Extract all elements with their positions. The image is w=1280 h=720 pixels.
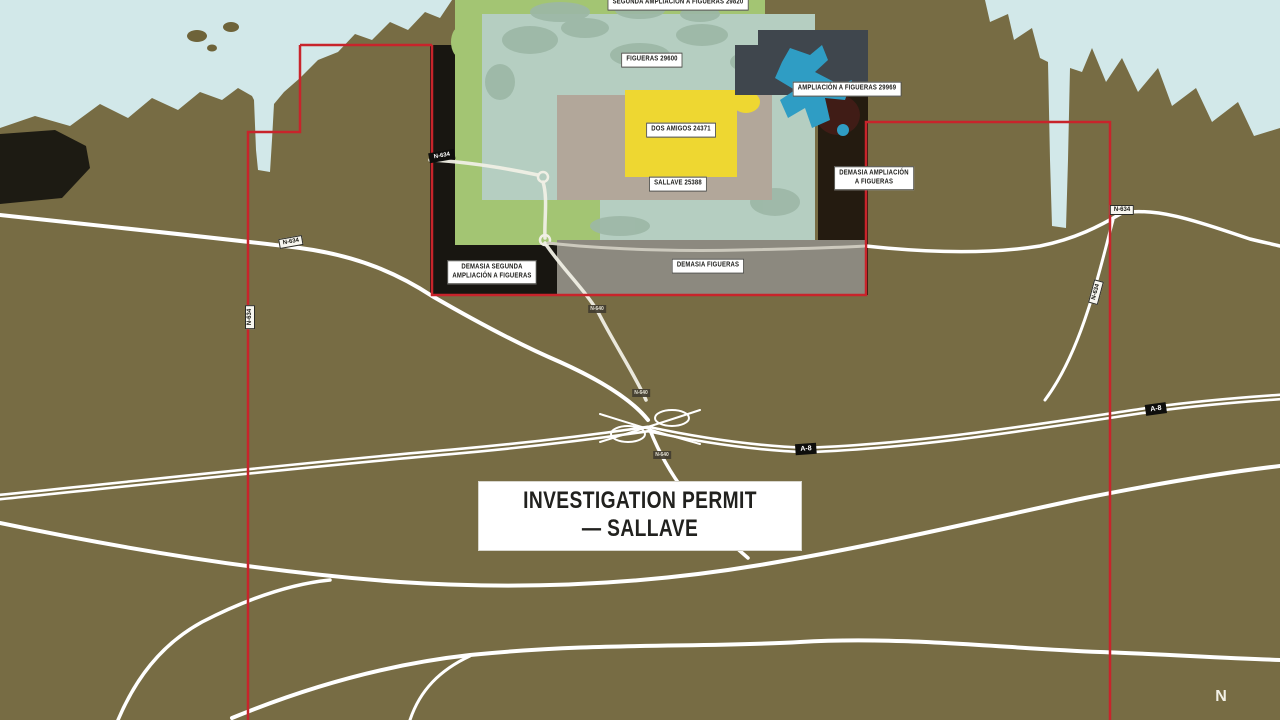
map-drawing	[0, 0, 1280, 720]
label-demasia-segunda: DEMASIA SEGUNDA AMPLIACIÓN A FIGUERAS	[447, 260, 536, 284]
label-ampliacion-figueras: AMPLIACIÓN A FIGUERAS 29969	[793, 82, 902, 97]
blue-dot	[837, 124, 849, 136]
label-line: DEMASIA AMPLIACIÓN	[839, 169, 908, 178]
label-dos-amigos: DOS AMIGOS 24371	[646, 123, 716, 138]
road-badge-n640-junction-south: N-640	[653, 451, 671, 459]
road-badge-n640-junction-north: N-640	[632, 389, 650, 397]
map-title-box: INVESTIGATION PERMIT — SALLAVE	[479, 482, 801, 550]
road-badge-a8-center: A-8	[795, 443, 817, 455]
label-line: AMPLIACIÓN A FIGUERAS	[452, 272, 531, 281]
label-figueras: FIGUERAS 29600	[621, 53, 683, 68]
label-demasia-figueras: DEMASIA FIGUERAS	[672, 259, 745, 274]
road-badge-n634-east: N-634	[1110, 205, 1134, 215]
label-demasia-ampliacion: DEMASIA AMPLIACIÓN A FIGUERAS	[834, 166, 914, 190]
label-sallave: SALLAVE 25388	[649, 177, 707, 192]
map-canvas: SEGUNDA AMPLIACIÓN A FIGUERAS 29820 FIGU…	[0, 0, 1280, 720]
label-segunda-ampliacion: SEGUNDA AMPLIACIÓN A FIGUERAS 29820	[608, 0, 749, 10]
road-badge-n634-west-lower: N-634	[245, 305, 255, 329]
map-title-text: INVESTIGATION PERMIT — SALLAVE	[511, 487, 769, 543]
label-line: DEMASIA SEGUNDA	[452, 263, 531, 272]
north-indicator: N	[1215, 688, 1227, 706]
green-blob	[451, 26, 471, 58]
road-badge-n640-north: N-640	[588, 305, 606, 313]
label-line: A FIGUERAS	[839, 178, 908, 187]
